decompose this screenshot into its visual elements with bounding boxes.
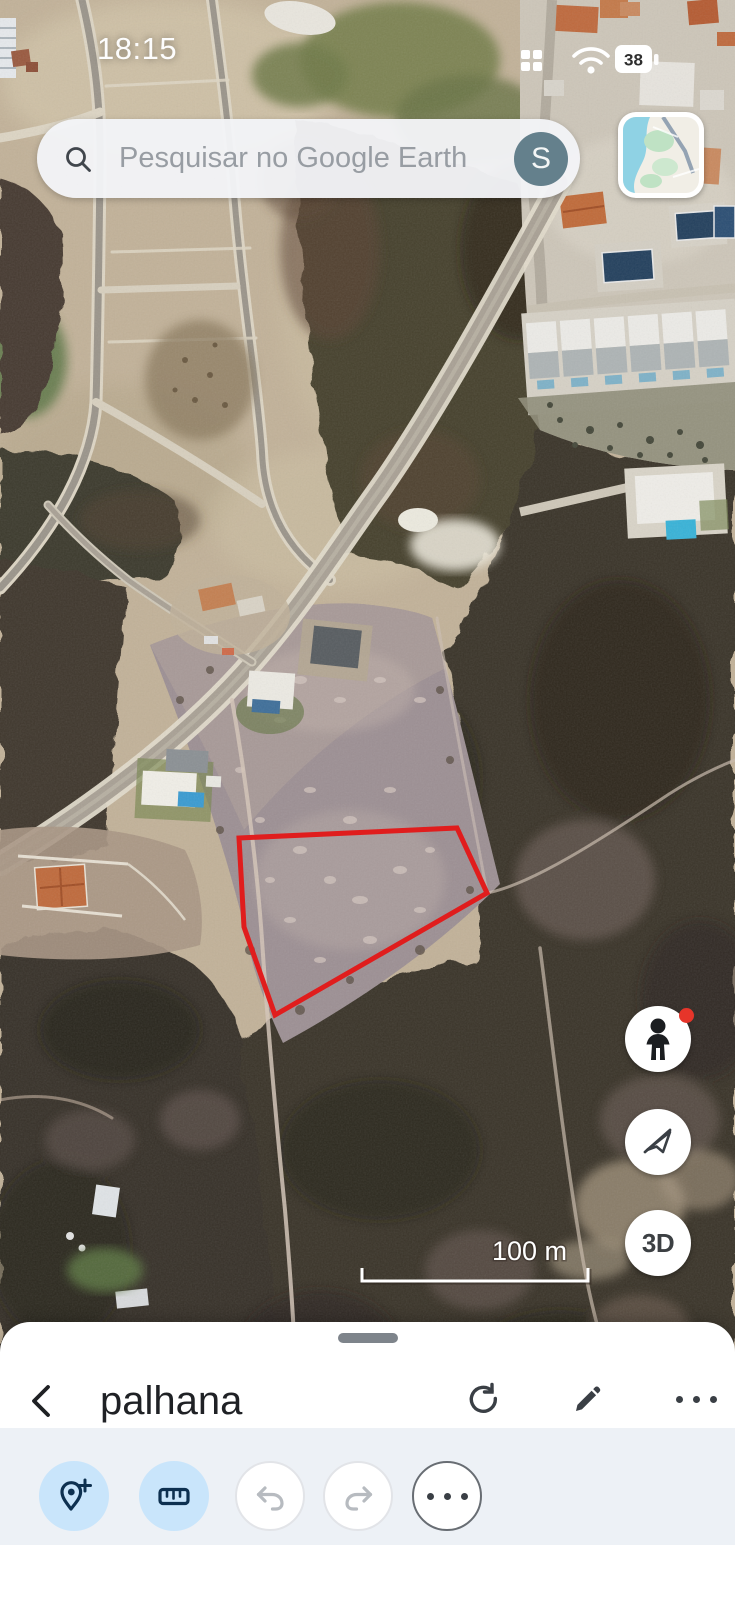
fly-mode-button[interactable]	[625, 1109, 691, 1175]
project-title: palhana	[100, 1379, 242, 1423]
back-icon[interactable]	[26, 1382, 56, 1420]
undo-button[interactable]	[235, 1461, 305, 1531]
search-bar[interactable]: Pesquisar no Google Earth S	[37, 119, 580, 198]
undo-icon	[253, 1478, 288, 1514]
grid-icon	[521, 50, 542, 71]
sheet-drag-handle[interactable]	[338, 1333, 398, 1343]
more-options-icon[interactable]	[676, 1396, 717, 1403]
google-earth-app: 100 m 18:15 38 Pesquisar no Google Earth…	[0, 0, 735, 1600]
minimap-preview	[623, 117, 699, 193]
measure-ruler-icon	[156, 1478, 192, 1514]
fly-disabled-icon	[639, 1123, 677, 1161]
account-avatar[interactable]: S	[514, 132, 568, 186]
street-view-notification-dot	[679, 1008, 694, 1023]
wifi-icon	[570, 42, 612, 75]
pegman-icon	[638, 1016, 678, 1062]
edit-pencil-icon[interactable]	[569, 1382, 605, 1418]
scale-label: 100 m	[492, 1236, 567, 1266]
refresh-icon[interactable]	[466, 1382, 502, 1418]
add-placemark-icon	[55, 1478, 93, 1514]
edit-toolbar	[0, 1428, 735, 1545]
3d-toggle-button[interactable]: 3D	[625, 1210, 691, 1276]
toolbar-more-button[interactable]	[412, 1461, 482, 1531]
search-icon	[63, 144, 93, 174]
status-time: 18:15	[97, 31, 177, 67]
minimap-toggle[interactable]	[618, 112, 704, 198]
add-placemark-button[interactable]	[39, 1461, 109, 1531]
battery-percent: 38	[624, 51, 643, 70]
redo-button[interactable]	[323, 1461, 393, 1531]
toolbar-more-icon	[427, 1493, 468, 1500]
measure-button[interactable]	[139, 1461, 209, 1531]
battery-icon: 38	[614, 44, 660, 74]
search-placeholder: Pesquisar no Google Earth	[119, 142, 467, 175]
redo-icon	[341, 1478, 376, 1514]
bottom-sheet: palhana	[0, 1322, 735, 1600]
